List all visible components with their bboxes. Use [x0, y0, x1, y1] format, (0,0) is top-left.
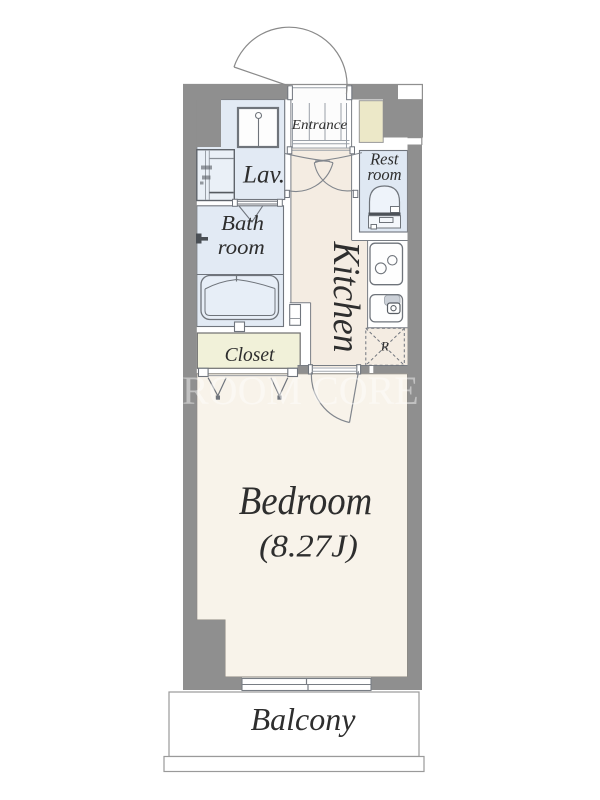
svg-text:ROOM CORE: ROOM CORE: [182, 368, 419, 413]
svg-text:Balcony: Balcony: [251, 701, 357, 737]
svg-text:Entrance: Entrance: [291, 118, 348, 133]
svg-text:room: room: [218, 236, 265, 259]
svg-text:Kitchen: Kitchen: [326, 241, 368, 353]
svg-text:(8.27J): (8.27J): [259, 529, 358, 565]
svg-text:Bedroom: Bedroom: [239, 480, 373, 524]
svg-text:R: R: [380, 339, 389, 354]
svg-text:Lav.: Lav.: [242, 162, 285, 189]
svg-text:Closet: Closet: [225, 345, 275, 366]
svg-text:room: room: [367, 165, 401, 184]
svg-text:Bath: Bath: [221, 212, 264, 235]
